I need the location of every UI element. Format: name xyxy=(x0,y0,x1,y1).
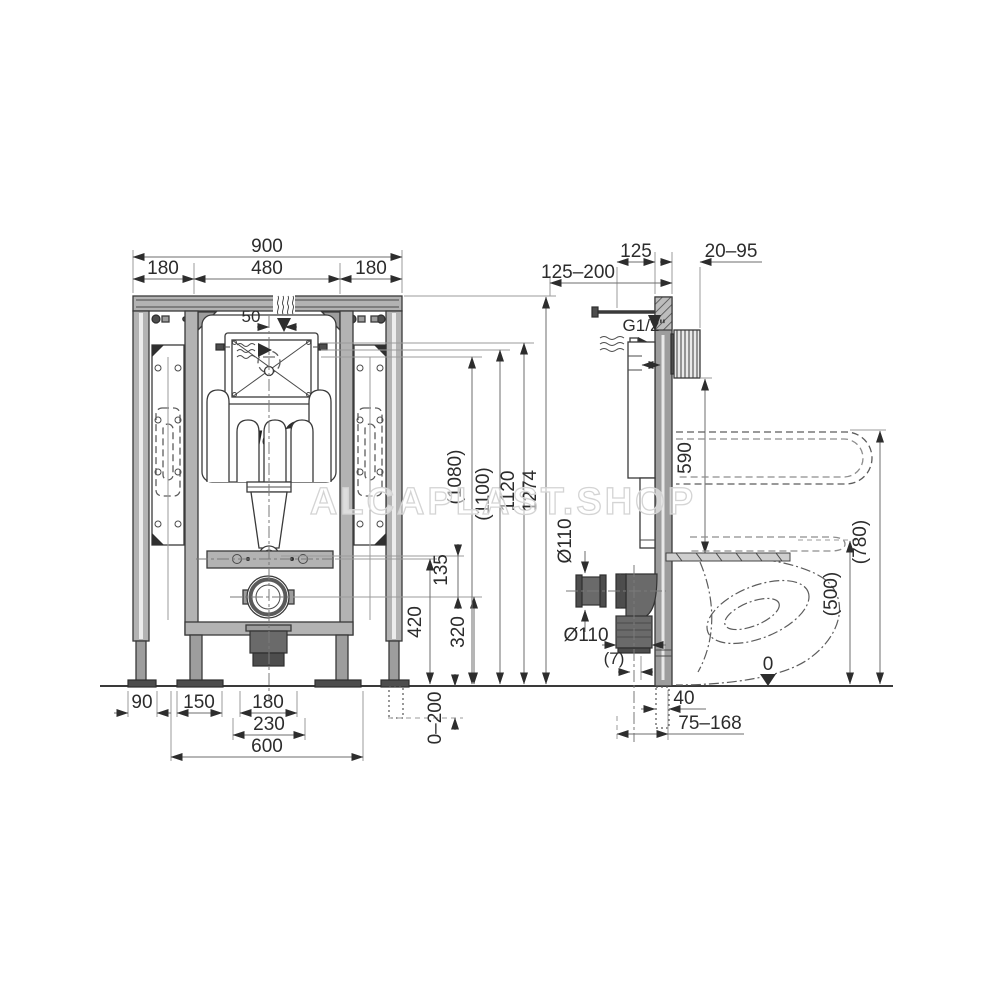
dim-floor-pipe: 40 xyxy=(673,688,694,709)
frame-top-rail xyxy=(133,296,402,311)
dim-total-width: 900 xyxy=(251,236,283,257)
dim-rod-range: 125–200 xyxy=(541,262,615,283)
dim-plate-range: 20–95 xyxy=(705,241,758,262)
dim-floor-zero: 0 xyxy=(763,654,774,675)
dim-water-conn: G1/2" xyxy=(623,316,666,335)
dim-dia-elbow: Ø110 xyxy=(563,625,608,646)
dim-drain-range: 75–168 xyxy=(678,713,741,734)
dim-width-left: 180 xyxy=(147,258,179,279)
dim-bracket-height: 420 xyxy=(405,606,426,638)
dim-b180: 180 xyxy=(252,692,284,713)
dim-depth-125: 125 xyxy=(620,241,652,262)
dim-width-right: 180 xyxy=(355,258,387,279)
dim-width-center: 480 xyxy=(251,258,283,279)
flush-plate-block xyxy=(671,330,700,378)
dim-dia-sleeve: Ø110 xyxy=(555,518,576,563)
dim-spacing-135: 135 xyxy=(431,554,452,586)
fixing-rod xyxy=(666,553,790,561)
dim-drain-height: 320 xyxy=(448,616,469,648)
dim-590: 590 xyxy=(675,442,696,474)
dim-seat-height: (500) xyxy=(821,572,842,616)
dim-b90: 90 xyxy=(131,692,152,713)
floor-zero-marker: 0 xyxy=(760,654,776,686)
dim-b150: 150 xyxy=(183,692,215,713)
installation-frame-drawing: 900 180 480 180 xyxy=(0,0,1000,1000)
dim-b230: 230 xyxy=(253,714,285,735)
technical-drawing-page: 900 180 480 180 xyxy=(0,0,1000,1000)
dim-foot-adjust: 0–200 xyxy=(425,692,446,745)
dim-bowl-height: (780) xyxy=(850,520,871,564)
dim-b600: 600 xyxy=(251,736,283,757)
side-panel-left xyxy=(152,345,184,620)
dim-offset-7: (7) xyxy=(604,649,625,668)
drain-elbow-side xyxy=(616,574,657,653)
dim-inlet-offset: 50 xyxy=(242,307,261,326)
watermark: ALCAPLAST.SHOP xyxy=(310,481,696,523)
